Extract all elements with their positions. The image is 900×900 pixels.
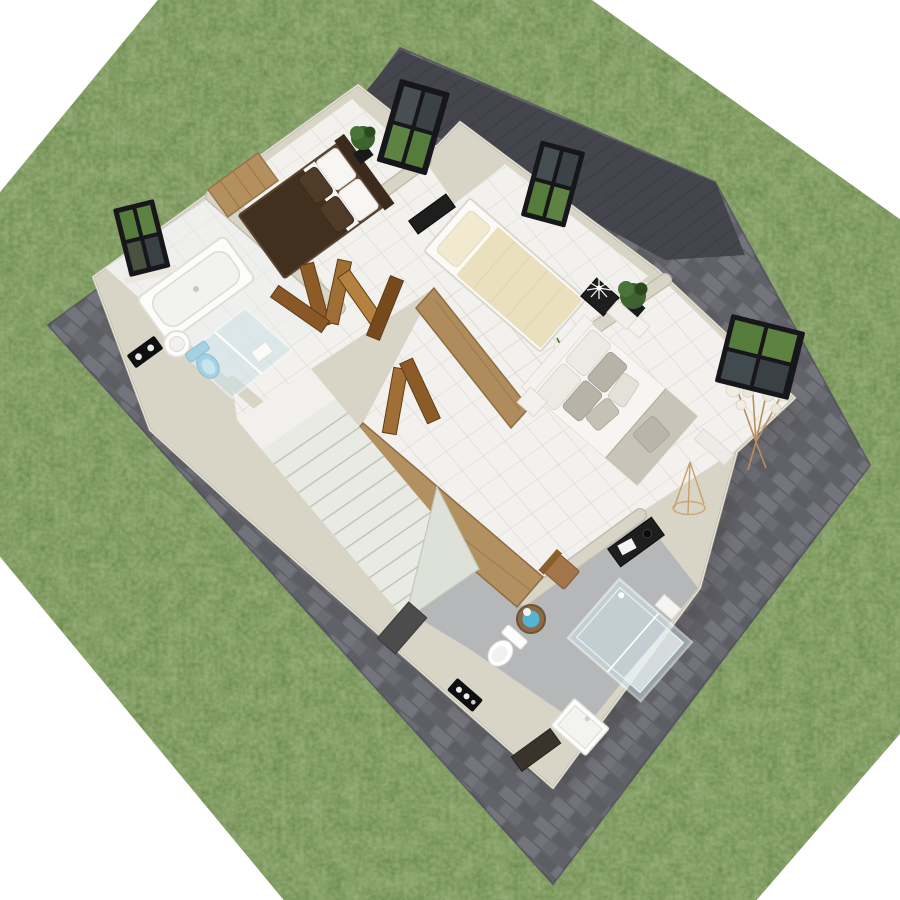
master-pillow-c1 [607,372,640,408]
window3-pane1 [536,146,560,181]
tray-sink-faucet [584,715,591,722]
master-door-left [382,367,407,434]
bed-dark-pillow-brown1 [297,166,334,205]
paved-pad [48,48,870,884]
folding-door-1 [300,262,330,327]
dark-paving-planks [362,50,745,260]
blossom-4 [768,375,780,387]
plant-bedroom2 [618,281,650,338]
partition-bed1-hall-base [303,161,425,251]
master-pillow-a1 [565,329,612,378]
bed-dark-base [237,136,392,279]
windows [107,79,805,401]
towel-basket [517,605,545,633]
folding-door-3 [338,270,386,330]
bedroom2-grout [416,160,648,350]
outer-walls [93,85,795,788]
window5-pane4 [754,359,790,393]
utility-panel-2 [447,678,483,712]
bedroom-2 [424,198,650,353]
blossom-arrangement [726,366,790,470]
half-walls [337,288,543,607]
bed-dark-pillow-white2 [337,178,379,222]
blossom-9 [771,404,781,414]
small-planter-leaves [557,338,564,344]
partition-bed2-master-base [560,280,665,352]
wardrobe-body [208,153,278,217]
bathroom2-floor [412,515,698,728]
window3-pane4 [546,186,570,221]
exterior [0,0,900,900]
plant2-pedestal [618,308,650,338]
blossom-10 [753,380,764,391]
blossom-2 [740,371,752,383]
blossom-7 [743,387,754,398]
under-stair-cut [405,487,479,620]
window-master [715,314,806,400]
master-headboard [521,315,593,395]
toilet2-bowl [483,636,518,672]
basket-towel-white [523,608,531,616]
master-bedroom [517,300,790,591]
bed-cream [424,198,586,352]
master-pillow-c2 [585,397,621,432]
stair-landing [237,369,336,450]
nightstand2-body [581,278,619,316]
bedroom2-floor [416,160,648,350]
window2-pane4 [405,130,432,168]
hallway-doors [271,259,441,434]
staircase [237,369,479,654]
stair-flight [262,399,479,620]
window2-frame [376,79,450,176]
toilet2-seat [489,643,511,666]
window3-pane3 [527,181,551,216]
basket-ring [517,605,545,633]
window-bathroom1 [107,198,178,285]
wardrobe [208,153,278,217]
shower2-tray [623,628,683,692]
partition-bath2-nw [524,515,640,600]
bathroom1-grout [106,196,339,382]
bedroom-1 [208,126,455,282]
dark-paving-band [362,50,745,260]
partition-bath1-bed1 [212,196,339,308]
master-grout [363,282,788,577]
washbasin [164,331,190,357]
partition-bath2-nw-base [524,515,640,600]
chair-seat [544,554,579,589]
utility-panel-1-knob2 [146,343,155,352]
bedroom1-floor [224,99,423,248]
bed-dark-blanket [240,168,349,277]
stair-treads [274,413,467,606]
master-folded-cushion [632,415,670,453]
partition-bed2-master [560,280,665,352]
house [93,79,805,788]
bathtub-drain [192,285,200,293]
desk-round-item [641,528,653,540]
master-pillow-a2 [535,363,582,412]
bedroom1-grout [224,99,423,248]
plant2-planter [623,296,646,318]
utility-panel-2-knob2 [462,692,470,700]
grass-texture-coarse [0,0,900,900]
shower2-inner-frame [577,588,684,693]
desk-top [608,517,665,567]
chair-backrest [538,549,562,575]
stair-foot-dark-panel [377,602,427,654]
master-mattress [532,324,698,485]
bed-dark [236,134,395,282]
utility-panel-1-knob [134,352,143,361]
plant1-pot [353,144,374,164]
partition-stairs-nw [232,382,308,448]
toilet-white [481,624,528,672]
folding-door-2 [324,259,351,325]
blossom-branches [738,380,780,470]
washbasin-bowl [170,337,185,352]
small-white-planter [554,341,566,353]
master-blanket-edge [606,389,666,458]
master-planter-box [607,300,637,329]
window1-sill [124,264,178,284]
plant2-foliage [620,283,646,309]
window5-pane2 [761,328,797,362]
hall-grout [232,161,560,420]
toilet-blue-seat [199,356,219,377]
master-pillow-b1 [587,351,629,394]
bathroom1-floor [106,196,339,382]
house-shadow [105,98,805,798]
wood-cap-grain [345,300,530,590]
lamp-wires [674,462,704,514]
window2-pane2 [415,92,442,132]
tray-sink-inner [558,705,602,748]
master-door-right [400,358,441,424]
toilet2-tank [501,624,528,649]
bed-cream-frame [424,198,586,352]
toilet-blue-bowl [192,350,223,383]
plant-bedroom1 [350,126,376,164]
wooden-chair [538,549,581,591]
utility-panel-1 [127,336,164,369]
partition-bath1-bed1-base [212,196,339,308]
plant2-foliage3 [635,283,648,296]
plant2-foliage2 [618,281,634,297]
shower-screen-1 [185,308,292,398]
bathroom-1 [127,235,292,398]
window3-frame [521,140,586,227]
partition-bed1-hall [303,161,425,251]
blossoms [726,366,790,414]
folding-door-5 [271,285,330,332]
media-cabinet [409,194,456,234]
shower2-head [617,591,625,599]
nightstand-bedroom2 [581,276,619,316]
plant1-foliage [351,126,375,150]
toilet-blue [185,340,226,383]
window1-pane2 [136,205,156,236]
master-nightstand [517,387,547,417]
partitions [212,161,665,600]
folding-door-4 [367,276,404,341]
master-pillow-b2 [562,379,604,422]
lamp-base [673,502,705,515]
shower-enclosure [568,579,692,701]
shower-caddy-1 [251,342,273,362]
bed-dark-pillow-brown2 [319,195,356,234]
basket-towel [523,611,540,628]
master-blanket [606,389,698,486]
starburst-center [597,286,602,291]
window2-pane3 [384,124,411,162]
floorplan-render [0,0,900,900]
window2-pane1 [394,86,421,126]
bed-cream-duvet [456,227,583,349]
shower-tray-sink [551,698,609,755]
background [0,0,900,900]
floorplan-svg [0,0,900,900]
dark-console [511,729,560,772]
blossom-3 [753,366,767,380]
floors [106,99,788,728]
blossom-1 [726,383,740,397]
master-bench [694,429,733,466]
partition-bed2-nw [420,162,500,224]
bed-dark-headboard [334,134,394,211]
master-knee-wall-wood-cap [416,288,529,428]
window1-pane4 [144,236,164,267]
wall-top-highlight [93,85,795,788]
wall-shelf [655,595,681,620]
bed-cream-pillow [435,209,492,268]
toilet-blue-tank [185,340,210,362]
window-bedroom2 [521,140,586,227]
starburst-decor [587,276,611,299]
desk-papers [617,538,636,555]
bathtub [136,235,255,342]
bathtub-outer [136,235,255,342]
bed-master [521,315,699,487]
paved-pad-bricks [48,48,870,884]
grass-lot [0,0,900,900]
bed-dark-pillow-white1 [315,147,357,191]
window1-pane1 [119,209,139,240]
shower2-divider [607,613,658,672]
window5-pane3 [721,351,757,385]
bed-dark-sheet-fold [303,161,359,231]
grass-texture-fine [0,0,900,900]
bed-cream-folds [473,242,563,332]
bathroom-2 [447,579,692,771]
shower-rail-1 [215,332,262,374]
plant1-foliage2 [350,126,364,140]
window3-pane2 [555,152,579,187]
hallway-floor [232,161,560,420]
window1-frame [113,199,171,277]
blossom-5 [778,389,790,401]
window-bedroom1 [376,79,450,176]
utility-panel-2-knob3 [470,699,476,705]
window5-frame [715,314,806,400]
wardrobe-doors [220,162,266,208]
blossom-6 [763,391,774,402]
master-floor [363,282,788,577]
utility-panel-2-knob [455,686,463,694]
bathtub-inner [148,247,245,332]
window1-pane3 [127,240,147,271]
utility-panel-2-box [447,678,483,712]
starburst-rays [587,276,611,299]
blossom-8 [736,400,746,410]
wire-floor-lamp [673,462,705,515]
shower2-glass [568,579,692,701]
stair-knee-wall-wood-cap [337,423,543,607]
utility-panel-1-box [127,336,164,369]
tray-sink-outer [551,698,609,755]
plant1-foliage3 [365,127,376,138]
master-desk [608,517,665,567]
window5-pane1 [728,320,764,354]
